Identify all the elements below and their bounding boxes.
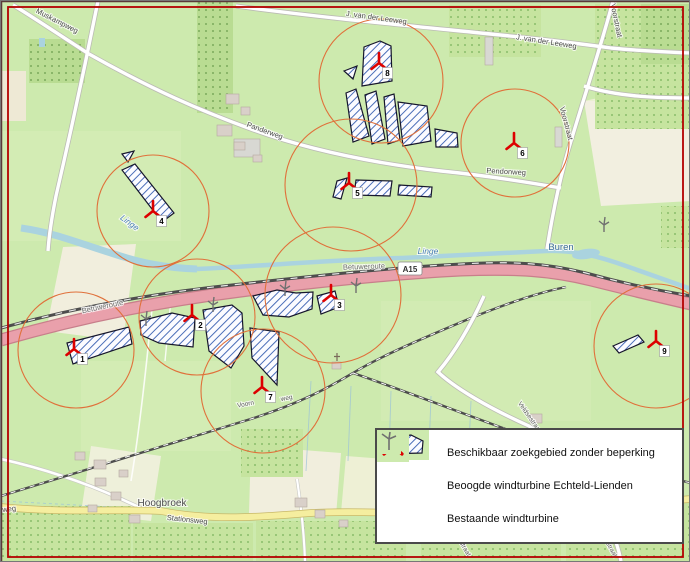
legend-label: Beoogde windturbine Echteld-Lienden (447, 480, 633, 492)
turbine-number: 4 (159, 217, 164, 226)
legend-label: Bestaande windturbine (447, 513, 559, 525)
turbine-number: 2 (198, 321, 203, 330)
legend-item-proposed-turbine: Beoogde windturbine Echteld-Lienden (385, 480, 676, 492)
highway-shield-a15: A15 (398, 262, 422, 275)
map-figure: 123456789 MuskampwegJ. van der LeewegJ. … (0, 0, 690, 562)
svg-text:A15: A15 (403, 265, 418, 274)
turbine-number: 8 (385, 69, 390, 78)
existing-turbine-icon (377, 430, 401, 454)
turbine-number: 7 (268, 393, 273, 402)
map-label: Hoogbroek (138, 498, 188, 509)
turbine-number: 3 (337, 301, 342, 310)
map-legend: Beschikbaar zoekgebied zonder beperking … (375, 428, 684, 544)
turbine-number: 1 (80, 355, 85, 364)
turbine-number: 9 (662, 347, 667, 356)
map-label: Betuweroute (343, 261, 385, 271)
map-label: Linge (418, 246, 439, 256)
legend-item-existing-turbine: Bestaande windturbine (385, 513, 676, 525)
legend-label: Beschikbaar zoekgebied zonder beperking (447, 447, 655, 459)
legend-item-search-area: Beschikbaar zoekgebied zonder beperking (385, 447, 676, 459)
map-label: Buren (548, 242, 573, 253)
search-area-polygon (398, 185, 432, 197)
turbine-number: 5 (355, 189, 360, 198)
turbine-number: 6 (520, 149, 525, 158)
